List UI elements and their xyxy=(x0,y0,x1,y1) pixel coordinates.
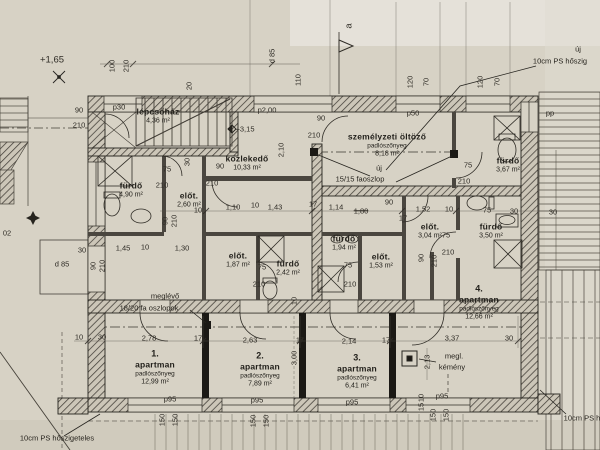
door-gap xyxy=(330,300,358,313)
window xyxy=(88,162,105,226)
window xyxy=(406,398,470,412)
window xyxy=(254,96,332,112)
bottom-extension-lines xyxy=(150,414,470,450)
existing-post-18x20 xyxy=(203,321,211,329)
window xyxy=(521,102,538,132)
floor-plan-drawing xyxy=(0,0,600,450)
window xyxy=(128,398,202,412)
window xyxy=(396,96,440,112)
window xyxy=(318,398,390,412)
floor-plan-sheet: architectural floor plan scan xyxy=(0,0,600,450)
door-gap xyxy=(240,300,268,313)
door-gap xyxy=(88,246,105,292)
new-post-15x15 xyxy=(310,148,318,156)
window xyxy=(466,96,510,112)
door-gap xyxy=(414,300,444,313)
window xyxy=(222,398,294,412)
door-gap xyxy=(140,300,170,313)
